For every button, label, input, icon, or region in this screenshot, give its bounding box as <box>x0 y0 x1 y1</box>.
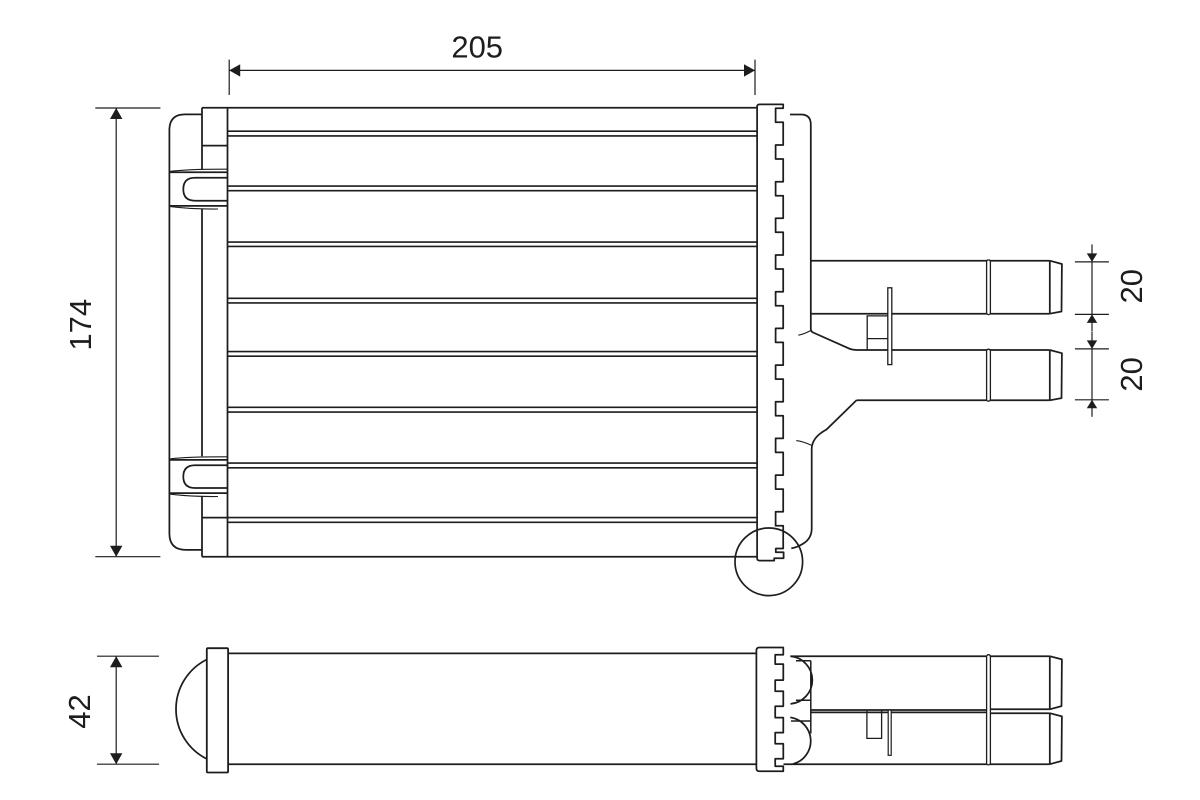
svg-text:20: 20 <box>1114 269 1149 303</box>
svg-text:174: 174 <box>63 299 98 351</box>
svg-text:42: 42 <box>62 694 97 728</box>
svg-text:205: 205 <box>451 30 503 65</box>
svg-text:20: 20 <box>1114 357 1149 391</box>
